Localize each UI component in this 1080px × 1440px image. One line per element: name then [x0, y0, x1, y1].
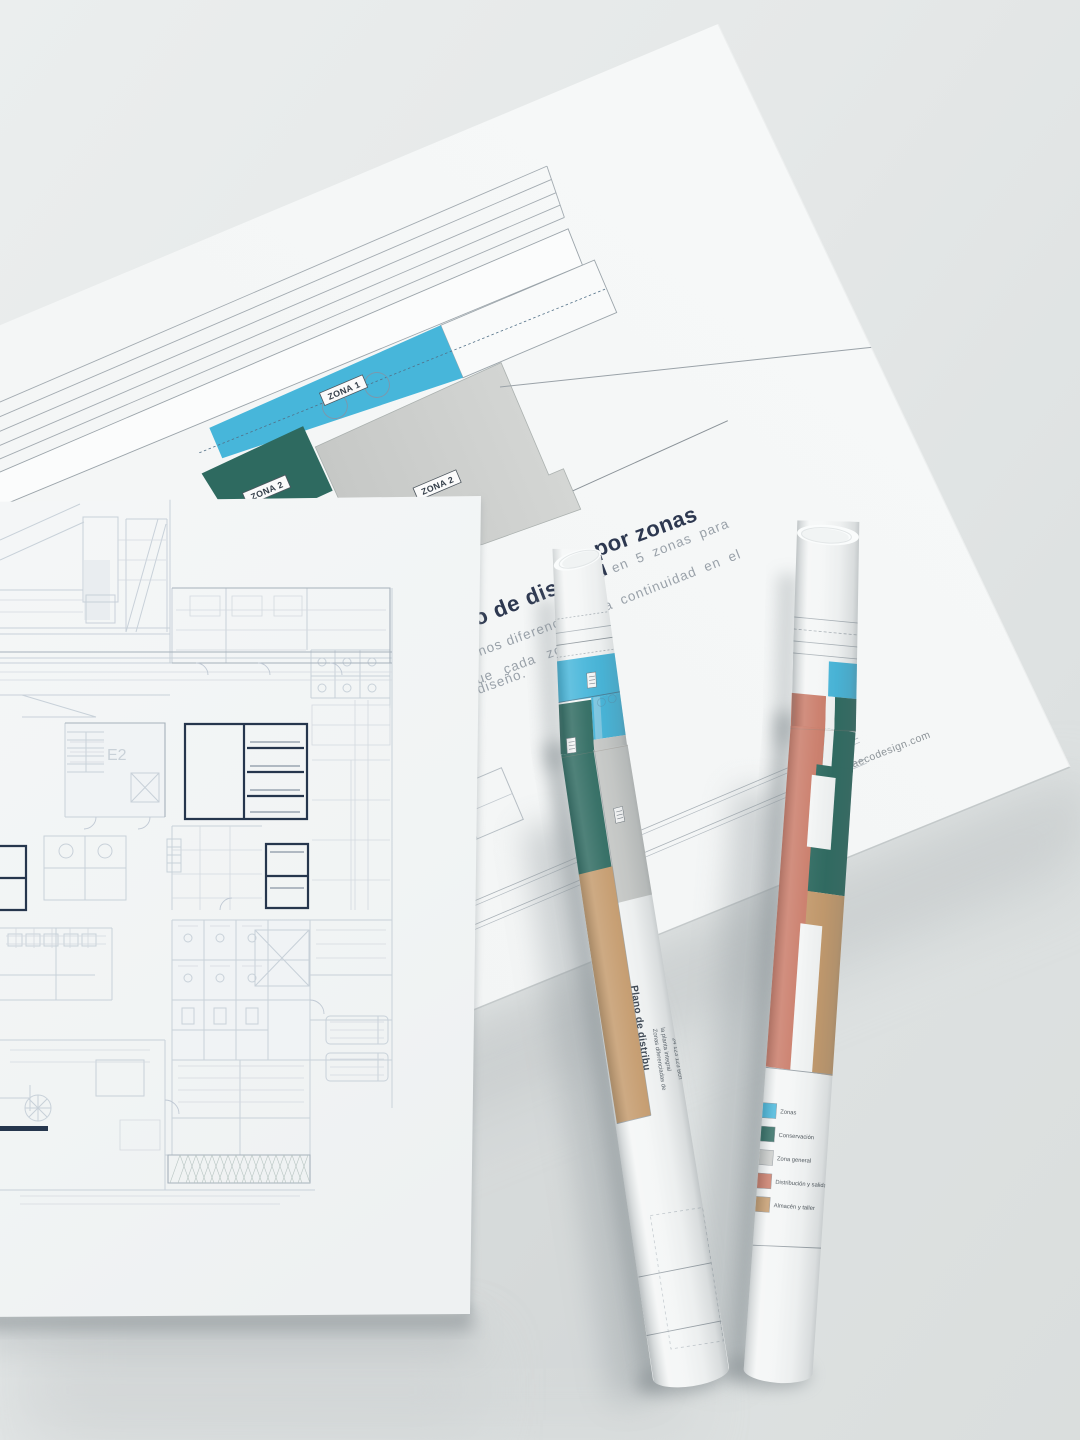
svg-text:E2: E2 — [107, 747, 127, 764]
